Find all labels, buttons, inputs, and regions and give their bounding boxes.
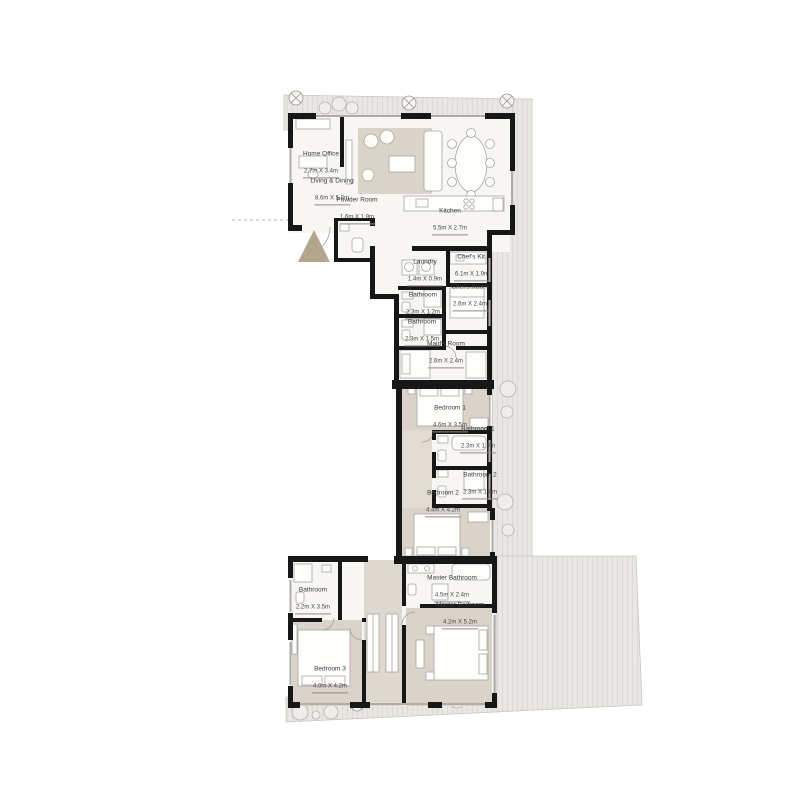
bed-pillow — [479, 654, 487, 674]
bench — [416, 640, 424, 668]
wall-segment — [370, 218, 375, 226]
window — [489, 395, 491, 426]
window — [370, 703, 428, 705]
wardrobe — [468, 512, 488, 522]
dining-chair — [448, 140, 457, 149]
wall-segment — [432, 452, 436, 478]
shower — [432, 584, 448, 600]
toilet — [402, 302, 410, 312]
wall-segment — [402, 663, 406, 703]
toilet — [296, 592, 304, 603]
bed-pillow — [417, 547, 435, 555]
planter — [324, 705, 338, 719]
wall-segment — [370, 246, 375, 298]
window — [489, 474, 491, 500]
armchair — [364, 134, 378, 148]
wall-segment — [350, 702, 370, 708]
wall-segment — [420, 604, 494, 608]
wall-segment — [292, 618, 322, 622]
bathtub — [452, 436, 486, 450]
wall-segment — [394, 556, 494, 564]
wall-segment — [412, 246, 492, 251]
armchair — [380, 130, 394, 144]
wall-segment — [370, 294, 398, 299]
wall-segment — [434, 430, 490, 434]
wall-segment — [446, 250, 450, 286]
bed-pillow — [420, 388, 438, 396]
wall-segment — [487, 383, 492, 395]
wall-segment — [456, 346, 492, 350]
wall-segment — [442, 286, 446, 350]
toilet — [438, 450, 446, 461]
wall-segment — [492, 693, 497, 708]
wall-segment — [362, 640, 366, 704]
bed-pillow — [402, 354, 410, 374]
tv-unit — [346, 140, 352, 184]
window — [489, 300, 491, 326]
wall-segment — [432, 490, 436, 508]
double-sink — [408, 564, 434, 573]
wall-segment — [402, 625, 406, 665]
wall-segment — [402, 560, 406, 606]
wall-segment — [362, 618, 366, 622]
window — [431, 115, 485, 117]
shower — [424, 318, 441, 335]
planter — [497, 494, 513, 510]
dining-chair — [486, 140, 495, 149]
shower — [294, 564, 312, 582]
shower — [464, 470, 484, 490]
wall-segment — [288, 183, 293, 230]
wall-segment — [334, 218, 338, 262]
wall-segment — [396, 386, 402, 562]
window — [300, 703, 350, 705]
planter — [500, 381, 516, 397]
window — [442, 703, 485, 705]
sink — [402, 292, 413, 299]
dining-chair — [486, 178, 495, 187]
bed-pillow — [479, 630, 487, 650]
window — [316, 115, 401, 117]
side-table — [362, 169, 374, 181]
planter — [312, 711, 320, 719]
window — [511, 171, 513, 205]
shelf — [296, 119, 330, 129]
window — [290, 642, 292, 685]
wall-segment — [288, 556, 368, 562]
planter — [332, 97, 346, 111]
wall-segment — [288, 613, 293, 640]
wall-segment — [446, 330, 492, 334]
sink — [438, 436, 448, 443]
wall-segment — [334, 258, 374, 262]
wall-segment — [288, 113, 293, 148]
window — [494, 615, 496, 693]
fridge — [493, 198, 503, 211]
bathtub — [452, 564, 490, 580]
desk — [299, 156, 327, 168]
planter — [502, 524, 514, 536]
wall-segment — [288, 225, 302, 231]
wall-segment — [398, 346, 444, 350]
wall-segment — [334, 218, 374, 221]
bed-pillow — [325, 676, 345, 685]
shower — [424, 290, 441, 307]
planter — [319, 102, 331, 114]
chefs-sink — [456, 255, 464, 261]
sink — [322, 565, 331, 572]
nightstand — [426, 672, 434, 680]
dining-chair — [448, 178, 457, 187]
sink — [438, 470, 448, 477]
entry-marker-triangle — [298, 230, 330, 262]
wall-segment — [392, 380, 494, 389]
stove-burner — [464, 205, 468, 209]
window — [489, 258, 491, 282]
stove-burner — [470, 199, 474, 203]
window — [492, 520, 494, 552]
toilet — [438, 486, 446, 497]
nightstand — [405, 548, 412, 556]
planter — [346, 102, 358, 114]
dining-chair — [486, 159, 495, 168]
stove-burner — [470, 205, 474, 209]
sofa — [424, 131, 442, 191]
wall-segment — [432, 430, 436, 440]
office-chair — [308, 169, 318, 179]
planter — [501, 406, 513, 418]
wall-segment — [428, 702, 442, 708]
wall-segment — [401, 113, 431, 119]
nightstand — [426, 626, 434, 634]
chefs-counter — [450, 252, 486, 264]
wall-segment — [288, 556, 293, 578]
wall-segment — [436, 466, 492, 470]
bed-pillow — [441, 388, 459, 396]
dining-chair — [467, 129, 476, 138]
window — [489, 440, 491, 462]
nightstand — [462, 548, 469, 556]
bed-pillow — [438, 547, 456, 555]
floor-plan-drawing — [0, 0, 800, 800]
wall-segment — [436, 504, 492, 508]
bed-pillow — [302, 676, 322, 685]
bed-pillow — [450, 288, 484, 297]
wall-segment — [398, 314, 446, 318]
wall-segment — [288, 702, 300, 708]
wall-segment — [446, 283, 492, 287]
toilet — [408, 584, 416, 595]
sink — [340, 224, 349, 231]
toilet — [402, 330, 410, 340]
wall-segment — [490, 508, 495, 520]
window — [290, 148, 292, 183]
kitchen-sink — [416, 199, 428, 207]
floor-plan-stage: Home Office 2.7m X 3.4m Living & Dining … — [0, 0, 800, 800]
toilet — [352, 238, 363, 252]
wall-segment — [340, 117, 344, 167]
wall-segment — [338, 560, 342, 620]
coffee-table — [389, 156, 415, 172]
wall-segment — [394, 294, 399, 384]
wardrobe — [466, 352, 486, 378]
wardrobe — [470, 418, 488, 428]
wall-segment — [510, 113, 515, 171]
window — [290, 580, 292, 612]
dining-chair — [448, 159, 457, 168]
stove-burner — [464, 199, 468, 203]
wall-segment — [398, 286, 446, 290]
dining-table — [455, 136, 487, 192]
sink — [402, 320, 413, 327]
